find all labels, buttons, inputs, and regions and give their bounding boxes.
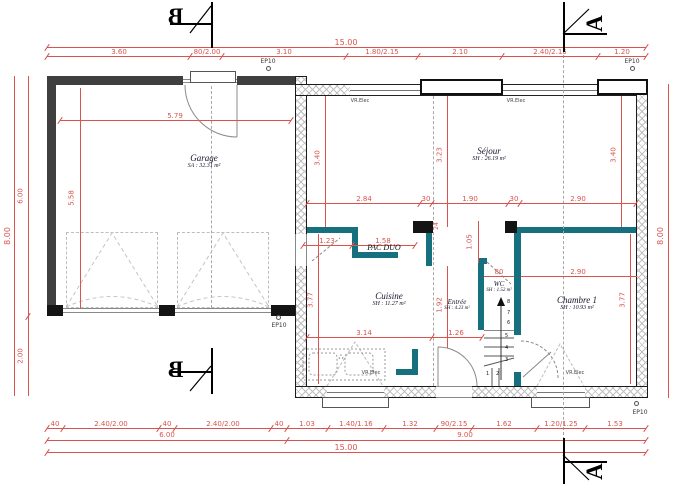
section-b-bottom-line [211, 348, 213, 394]
vr-elec-label: VR.Elec [362, 370, 381, 376]
partition-chambre-top [517, 227, 636, 233]
dim-wc-door: 80 [495, 269, 504, 276]
dim-label: 1.40/1.16 [339, 421, 373, 428]
axis-section-a [563, 50, 564, 440]
ep10-pipe-icon [276, 315, 281, 320]
partition-wc-left [478, 258, 484, 330]
room-name: Garage [188, 153, 221, 163]
room-area: SH : 10.93 m² [557, 305, 597, 312]
dim-bottom-garage: 6.00 [159, 432, 175, 439]
dim-label: 1.03 [299, 421, 315, 428]
stair-step-number: 2 [496, 372, 499, 377]
section-b-top-line [211, 2, 213, 48]
dim-line-wc-door [484, 276, 514, 277]
dim-label: 1.20/1.25 [544, 421, 578, 428]
room-name: Entrée [444, 298, 469, 306]
dim-sejour-right: 3.40 [611, 147, 618, 163]
partition-chambre-left-lower [514, 372, 521, 386]
dim-line-left-total [14, 76, 15, 396]
room-area: SA : 32.31 m² [188, 163, 221, 170]
garage-service-door-box [190, 71, 236, 83]
room-label-chambre: Chambre 1 SH : 10.93 m² [557, 295, 597, 312]
room-name: Chambre 1 [557, 295, 597, 305]
garage-left-wall [47, 76, 56, 316]
dim-label: 40 [51, 421, 60, 428]
dim-left-total: 8.00 [4, 227, 12, 245]
ep10-label: EP10 [632, 409, 647, 416]
garage-top-wall-left [47, 76, 183, 85]
dim-label: 90/2.15 [441, 421, 468, 428]
dim-chambre-w: 2.90 [570, 269, 586, 276]
dim-label: 2.10 [452, 49, 468, 56]
chambre-door-arc [521, 341, 558, 378]
dim-entree-w: 1.26 [448, 330, 464, 337]
room-label-entree: Entrée SH : 4.23 m² [444, 298, 469, 312]
dim-line-sejour-right [621, 96, 622, 227]
dim-label: 40 [163, 421, 172, 428]
dim-line-bottom-sub [47, 440, 646, 441]
garage-door2-line [175, 308, 271, 309]
dim-line-cuisine-entree-w [307, 337, 482, 338]
partition-entree-top [426, 233, 432, 266]
dim-line-chambre-w [521, 276, 637, 277]
cuisine-window-sill-box [322, 397, 389, 408]
dim-cuisine-h: 3.77 [308, 292, 315, 308]
entree-door-opening [436, 386, 472, 398]
top-wall-pier [420, 79, 503, 95]
dim-line-sejour-left [325, 96, 326, 227]
dim-label: 1.53 [607, 421, 623, 428]
room-name: Cuisine [372, 291, 405, 301]
dim-bottom-total: 15.00 [335, 444, 358, 452]
garage-door2-panel [177, 232, 269, 308]
room-label-garage: Garage SA : 32.31 m² [188, 153, 221, 170]
dim-line-bottom-chain [47, 428, 646, 429]
dim-label: 3.60 [111, 49, 127, 56]
pac-duo-label: PAC DUO [367, 243, 400, 252]
garage-door1-line [63, 308, 159, 309]
dim-line-chambre-h [630, 234, 631, 384]
ep10-pipe-icon [630, 66, 635, 71]
dim-label: 30 [510, 196, 519, 203]
axis-center [433, 96, 434, 386]
partition-stub-foot [396, 369, 418, 375]
stair-step-number: 5 [505, 334, 508, 339]
partition-pac-bottom [352, 252, 398, 258]
dim-left-below: 2.00 [18, 348, 25, 364]
dim-left-garage: 6.00 [18, 188, 25, 204]
section-a-top-letter: A [583, 15, 606, 32]
partition-wc-top-nub [478, 258, 487, 264]
dim-label: 2.84 [356, 196, 372, 203]
garage-top-wall-right [237, 76, 295, 85]
dim-bottom-house: 9.00 [457, 432, 473, 439]
dim-right-total: 8.00 [657, 227, 665, 245]
ep10-pipe-icon [266, 66, 271, 71]
room-label-wc: WC SH : 1.52 m² [486, 280, 511, 294]
dim-line-bottom-total [47, 452, 646, 453]
top-wall-corner-pier [597, 79, 648, 95]
dim-top-total: 15.00 [335, 39, 358, 47]
dim-label: 2.40/2.00 [94, 421, 128, 428]
dim-line-sejour-chain [307, 203, 636, 204]
dim-label: 2.40/2.00 [206, 421, 240, 428]
ep10-label: EP10 [624, 58, 639, 65]
garage-pillar [159, 305, 175, 316]
dim-label: 2.40/2.15 [533, 49, 567, 56]
stair-arrow [497, 297, 505, 380]
garage-pillar [47, 305, 63, 316]
partition-pac-left [307, 227, 352, 233]
garage-pillar [271, 305, 295, 316]
dim-line-right-total [668, 84, 669, 398]
garage-house-door-opening [295, 234, 307, 266]
window-swing-dashes [327, 342, 584, 386]
room-name: Séjour [472, 146, 505, 156]
dim-line-left-chain [28, 76, 29, 396]
partition-chambre-left-upper [514, 233, 521, 335]
dim-garage-h: 5.58 [69, 190, 76, 206]
pillar-sejour-right [505, 221, 517, 233]
stair-step-number: 7 [507, 311, 510, 316]
dim-chambre-h: 3.77 [620, 292, 627, 308]
chambre-door-leaf [523, 352, 551, 377]
vr-elec-label: VR.Elec [351, 98, 370, 104]
dim-line-sejour-mid [447, 96, 448, 227]
stair-step-number: 3 [505, 358, 508, 363]
house-right-wall [636, 84, 648, 398]
garage-door2-line [175, 312, 271, 313]
dim-label: 1.90 [462, 196, 478, 203]
room-label-cuisine: Cuisine SH : 11.27 m² [372, 291, 405, 308]
dim-sejour-left: 3.40 [315, 150, 322, 166]
floor-plan-canvas: 15.00 3.60 80/2.00 3.10 1.80/2.15 2.10 2… [0, 0, 700, 486]
room-area: SH : 4.23 m² [444, 306, 469, 312]
dim-garage-w: 5.79 [167, 113, 183, 120]
dim-label: 1.62 [496, 421, 512, 428]
stair-step-number: 6 [507, 321, 510, 326]
room-label-sejour: Séjour SH : 26.19 m² [472, 146, 505, 163]
pillar-sejour-left [413, 221, 433, 233]
dim-label: 2.90 [570, 196, 586, 203]
ep10-label: EP10 [271, 322, 286, 329]
room-name: WC [486, 280, 511, 288]
dim-line-garage-w [60, 120, 291, 121]
section-a-top-bar [563, 33, 607, 35]
stair-step-number: 8 [507, 300, 510, 305]
sejour-window-1 [350, 84, 420, 96]
room-area: SH : 26.19 m² [472, 156, 505, 163]
sejour-window-2 [503, 84, 597, 96]
ep10-pipe-icon [634, 401, 639, 406]
section-b-top-letter: B [168, 5, 183, 28]
dim-label: 30 [422, 196, 431, 203]
dim-entree-h: 1.92 [437, 297, 444, 313]
wc-stair-divider [484, 330, 514, 331]
section-a-top-line [563, 2, 565, 52]
stair-treads [484, 338, 514, 386]
dim-label: 80/2.00 [194, 49, 221, 56]
dim-label: 1.20 [614, 49, 630, 56]
dim-label: 40 [275, 421, 284, 428]
dim-line-cuisine-h [318, 234, 319, 384]
vr-elec-label: VR.Elec [507, 98, 526, 104]
section-b-bottom-letter: B [168, 358, 183, 381]
dim-label: 1.32 [402, 421, 418, 428]
dim-label: 3.10 [276, 49, 292, 56]
room-area: SH : 11.27 m² [372, 301, 405, 308]
entree-door-swing [438, 347, 477, 386]
stair-step-number: 4 [505, 346, 508, 351]
stair-step-number: 1 [486, 372, 489, 377]
dim-sejour-mid: 3.23 [437, 147, 444, 163]
dim-pac-a: 1.23 [319, 238, 335, 245]
room-area: SH : 1.52 m² [486, 288, 511, 294]
dim-line-pac-v [478, 221, 479, 263]
dim-label: 1.80/2.15 [365, 49, 399, 56]
ep10-label: EP10 [260, 58, 275, 65]
section-a-bottom-letter: A [583, 463, 606, 480]
vr-elec-label: VR.Elec [566, 370, 585, 376]
dim-cuisine-w: 3.14 [356, 330, 372, 337]
dim-line-garage-h [80, 88, 81, 308]
garage-door1-line [63, 312, 159, 313]
chambre-window-sill-box [531, 397, 590, 408]
dim-pac-d: 1.05 [467, 234, 474, 250]
dim-pac-c: 24 [434, 222, 440, 230]
